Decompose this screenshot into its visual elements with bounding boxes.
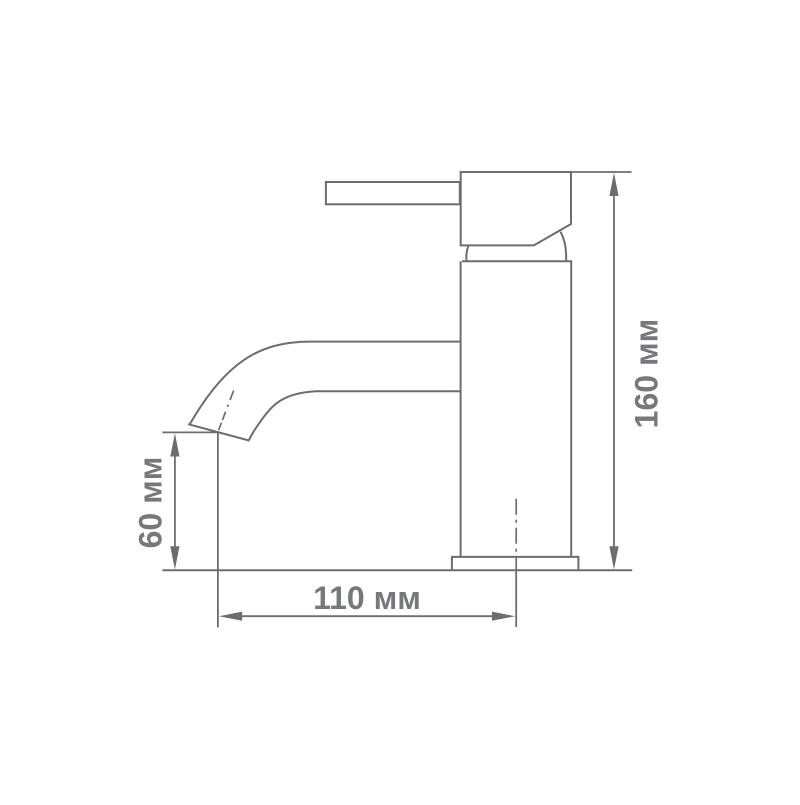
svg-text:110 мм: 110 мм xyxy=(313,580,421,616)
svg-text:160 мм: 160 мм xyxy=(629,319,665,429)
svg-text:60 мм: 60 мм xyxy=(133,457,169,549)
